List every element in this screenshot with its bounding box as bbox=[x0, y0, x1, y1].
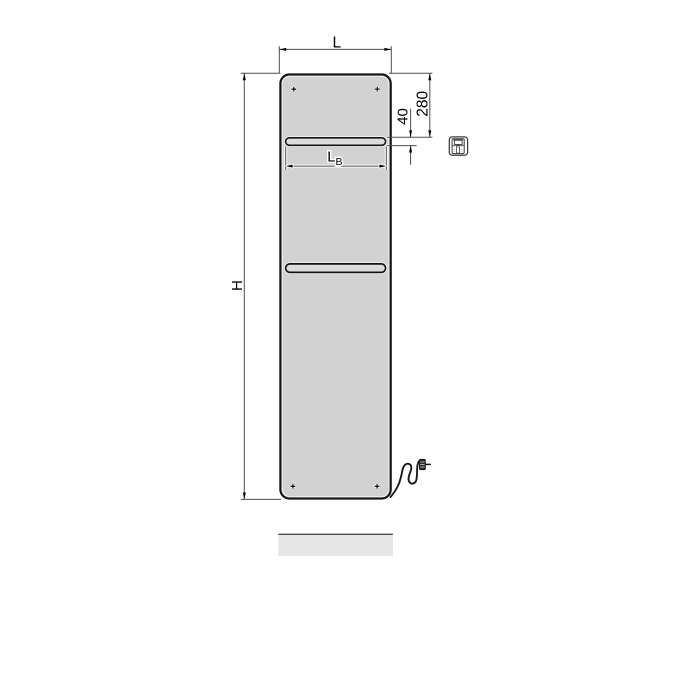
svg-text:280: 280 bbox=[415, 90, 432, 116]
svg-text:H: H bbox=[229, 280, 246, 291]
svg-text:40: 40 bbox=[395, 108, 412, 125]
svg-text:L: L bbox=[332, 34, 341, 51]
